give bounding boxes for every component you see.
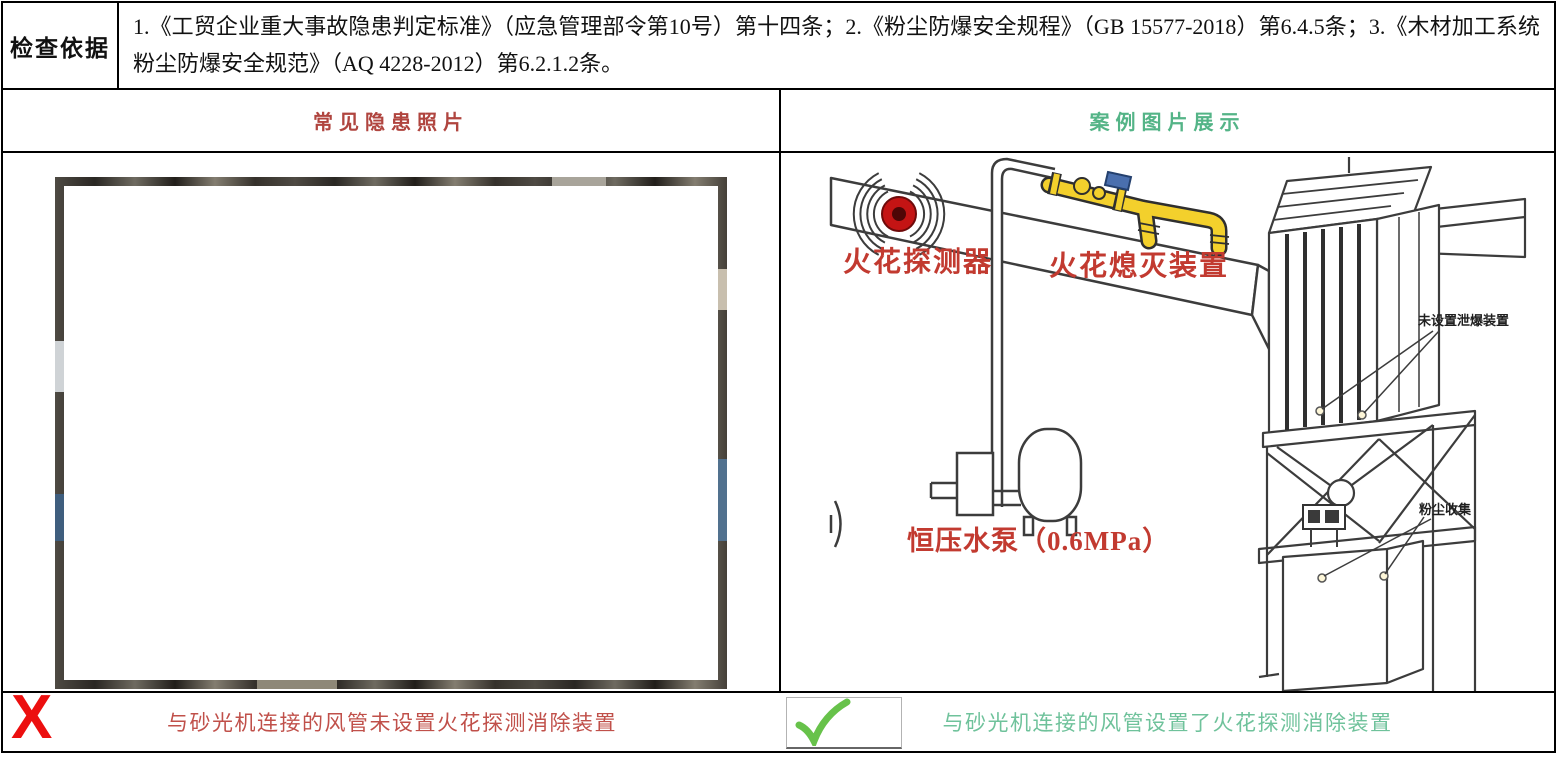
case-diagram-svg: 火花探测器 火花熄灭装置 恒压水泵（0.6MPa） 未设置泄爆装置 粉尘收集 [781,153,1557,693]
photo-edge-fragment [55,494,64,540]
hazard-photo [55,177,727,689]
photo-edge-fragment [718,459,727,541]
valve-bump [1074,178,1090,194]
hazard-photo-cell [3,151,781,691]
inspection-table: 检查依据 1.《工贸企业重大事故隐患判定标准》（应急管理部令第10号）第十四条；… [1,1,1556,753]
pass-check-box [786,697,902,749]
spark-extinguisher-label: 火花熄灭装置 [1049,250,1229,282]
spark-detector-lens [892,207,906,221]
photo-edge-fragment [552,177,606,186]
photo-edge-fragment [55,341,64,392]
water-pump-label: 恒压水泵（0.6MPa） [907,526,1170,556]
photo-edge-fragment [257,680,338,689]
water-pump-assembly [931,429,1081,535]
hazard-photo-blank-area [64,186,718,680]
hazard-column-header: 常见隐患照片 [3,88,781,151]
discharge-valve-mark [1325,510,1339,523]
case-column-header: 案例图片展示 [781,88,1554,151]
spark-detector-label: 火花探测器 [843,246,993,278]
dust-collection-annotation: 粉尘收集 [1419,502,1472,517]
hazard-caption-cell: X 与砂光机连接的风管未设置火花探测消除装置 [3,691,781,753]
photo-edge-fragment [718,269,727,310]
no-vent-annotation: 未设置泄爆装置 [1417,313,1509,328]
cropped-equipment-arc [835,501,841,547]
frame-hub [1328,480,1354,506]
valve-bump [1093,187,1105,199]
document-page: 检查依据 1.《工贸企业重大事故隐患判定标准》（应急管理部令第10号）第十四条；… [0,0,1559,760]
inspection-basis-text: 1.《工贸企业重大事故隐患判定标准》（应急管理部令第10号）第十四条；2.《粉尘… [119,3,1554,88]
valve-handle-icon [1105,172,1131,190]
discharge-valve-mark [1308,510,1320,523]
fail-x-icon: X [11,687,52,749]
hazard-caption: 与砂光机连接的风管未设置火花探测消除装置 [167,707,617,737]
case-diagram-cell: 火花探测器 火花熄灭装置 恒压水泵（0.6MPa） 未设置泄爆装置 粉尘收集 [781,151,1554,691]
inspection-basis-label: 检查依据 [3,3,119,88]
dust-collection-bag [1283,541,1423,691]
check-icon [787,698,901,746]
case-caption-cell: 与砂光机连接的风管设置了火花探测消除装置 [781,691,1554,753]
case-caption: 与砂光机连接的风管设置了火花探测消除装置 [943,707,1393,737]
